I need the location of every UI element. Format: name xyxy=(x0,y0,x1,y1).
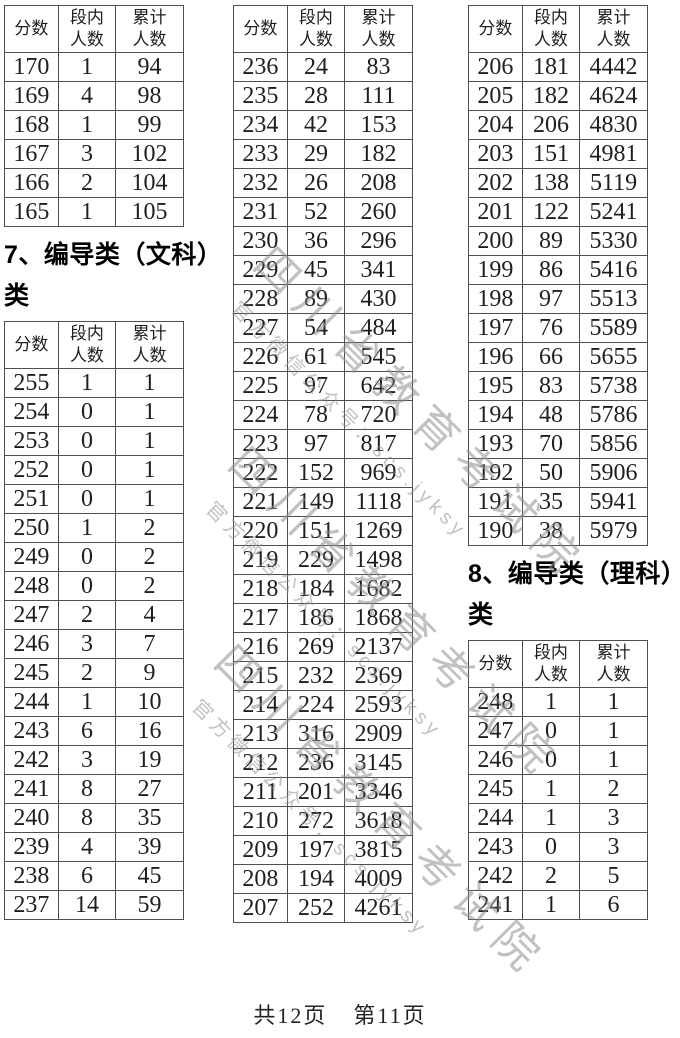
table-cell: 230 xyxy=(234,227,288,256)
table-row: 2102723618 xyxy=(234,807,413,836)
table-row: 197765589 xyxy=(469,314,648,343)
table-cell: 1 xyxy=(116,485,184,514)
table-cell: 0 xyxy=(522,717,579,746)
table-row: 240835 xyxy=(5,804,184,833)
table-cell: 2 xyxy=(116,514,184,543)
table-row: 192505906 xyxy=(469,459,648,488)
table-cell: 14 xyxy=(58,891,115,920)
table-row: 24529 xyxy=(5,659,184,688)
table-cell: 254 xyxy=(5,398,59,427)
table-row: 24811 xyxy=(469,688,648,717)
table-cell: 149 xyxy=(287,488,344,517)
table-cell: 3 xyxy=(580,833,648,862)
table-cell: 240 xyxy=(5,804,59,833)
table-cell: 220 xyxy=(234,517,288,546)
table-cell: 0 xyxy=(58,485,115,514)
table-cell: 2593 xyxy=(345,691,413,720)
table-cell: 242 xyxy=(469,862,523,891)
score-table-wenke-part2: 分数 段内 人数 累计 人数 2362483235281112344215323… xyxy=(233,5,413,923)
table-cell: 2137 xyxy=(345,633,413,662)
table-cell: 5979 xyxy=(580,517,648,546)
table-cell: 341 xyxy=(345,256,413,285)
column-right: 分数 段内 人数 累计 人数 2061814442205182462420420… xyxy=(468,5,648,920)
table-cell: 1 xyxy=(580,688,648,717)
table-cell: 250 xyxy=(5,514,59,543)
table-cell: 2 xyxy=(522,862,579,891)
table-row: 22945341 xyxy=(234,256,413,285)
table-cell: 190 xyxy=(469,517,523,546)
table-row: 190385979 xyxy=(469,517,648,546)
table-cell: 3 xyxy=(58,630,115,659)
table-cell: 35 xyxy=(522,488,579,517)
table-cell: 70 xyxy=(522,430,579,459)
col-header-segment-count: 段内 人数 xyxy=(522,641,579,688)
col-header-segment-count: 段内 人数 xyxy=(58,6,115,53)
table-cell: 4009 xyxy=(345,865,413,894)
table-cell: 182 xyxy=(345,140,413,169)
table-cell: 0 xyxy=(58,427,115,456)
col-header-score: 分数 xyxy=(469,6,523,53)
table-cell: 86 xyxy=(522,256,579,285)
table-row: 2171861868 xyxy=(234,604,413,633)
table-row: 24601 xyxy=(469,746,648,775)
table-cell: 16 xyxy=(116,717,184,746)
table-row: 170194 xyxy=(5,53,184,82)
table-cell: 6 xyxy=(580,891,648,920)
table-row: 25511 xyxy=(5,369,184,398)
table-cell: 59 xyxy=(116,891,184,920)
table-header: 分数 段内 人数 累计 人数 xyxy=(469,6,648,53)
table-cell: 89 xyxy=(522,227,579,256)
table-cell: 212 xyxy=(234,749,288,778)
table-cell: 272 xyxy=(287,807,344,836)
table-row: 24413 xyxy=(469,804,648,833)
table-cell: 2 xyxy=(116,543,184,572)
table-row: 2122363145 xyxy=(234,749,413,778)
table-row: 2072524261 xyxy=(234,894,413,923)
table-cell: 1868 xyxy=(345,604,413,633)
table-row: 193705856 xyxy=(469,430,648,459)
table-row: 2362483 xyxy=(234,53,413,82)
table-row: 2133162909 xyxy=(234,720,413,749)
col-header-score: 分数 xyxy=(234,6,288,53)
table-row: 238645 xyxy=(5,862,184,891)
table-cell: 1682 xyxy=(345,575,413,604)
table-row: 2081944009 xyxy=(234,865,413,894)
table-cell: 5655 xyxy=(580,343,648,372)
score-table-body: 2481124701246012451224413243032422524116 xyxy=(469,688,648,920)
table-cell: 153 xyxy=(345,111,413,140)
table-cell: 208 xyxy=(345,169,413,198)
table-cell: 1 xyxy=(58,369,115,398)
table-cell: 208 xyxy=(234,865,288,894)
table-row: 25012 xyxy=(5,514,184,543)
table-cell: 269 xyxy=(287,633,344,662)
table-cell: 0 xyxy=(58,398,115,427)
table-cell: 1 xyxy=(58,53,115,82)
table-cell: 2909 xyxy=(345,720,413,749)
table-cell: 236 xyxy=(287,749,344,778)
table-cell: 45 xyxy=(287,256,344,285)
table-cell: 241 xyxy=(5,775,59,804)
table-cell: 151 xyxy=(287,517,344,546)
table-header: 分数 段内 人数 累计 人数 xyxy=(5,6,184,53)
table-cell: 232 xyxy=(287,662,344,691)
table-cell: 0 xyxy=(58,572,115,601)
table-row: 2152322369 xyxy=(234,662,413,691)
table-row: 2162692137 xyxy=(234,633,413,662)
table-cell: 2369 xyxy=(345,662,413,691)
table-cell: 1 xyxy=(58,198,115,227)
footer-total-pages: 共12页 xyxy=(253,1003,327,1028)
table-cell: 224 xyxy=(287,691,344,720)
score-table-body: 2551125401253012520125101250122490224802… xyxy=(5,369,184,920)
table-cell: 166 xyxy=(5,169,59,198)
table-cell: 194 xyxy=(469,401,523,430)
table-cell: 1 xyxy=(116,427,184,456)
table-cell: 202 xyxy=(469,169,523,198)
table-header-row: 分数 段内 人数 累计 人数 xyxy=(234,6,413,53)
table-cell: 165 xyxy=(5,198,59,227)
table-cell: 1118 xyxy=(345,488,413,517)
table-row: 2011225241 xyxy=(469,198,648,227)
table-cell: 97 xyxy=(287,372,344,401)
table-row: 22397817 xyxy=(234,430,413,459)
table-row: 242319 xyxy=(5,746,184,775)
table-row: 168199 xyxy=(5,111,184,140)
table-cell: 245 xyxy=(469,775,523,804)
table-cell: 1 xyxy=(522,891,579,920)
table-cell: 233 xyxy=(234,140,288,169)
table-cell: 4442 xyxy=(580,53,648,82)
table-cell: 248 xyxy=(5,572,59,601)
table-header-row: 分数 段内 人数 累计 人数 xyxy=(469,641,648,688)
table-cell: 4830 xyxy=(580,111,648,140)
col-header-score: 分数 xyxy=(5,6,59,53)
table-cell: 222 xyxy=(234,459,288,488)
table-row: 2211491118 xyxy=(234,488,413,517)
col-header-cumulative-count: 累计 人数 xyxy=(580,6,648,53)
table-cell: 48 xyxy=(522,401,579,430)
table-cell: 182 xyxy=(522,82,579,111)
table-header: 分数 段内 人数 累计 人数 xyxy=(469,641,648,688)
table-row: 191355941 xyxy=(469,488,648,517)
table-cell: 316 xyxy=(287,720,344,749)
table-row: 25401 xyxy=(5,398,184,427)
table-cell: 26 xyxy=(287,169,344,198)
table-cell: 248 xyxy=(469,688,523,717)
col-header-cumulative-count: 累计 人数 xyxy=(116,322,184,369)
table-row: 22754484 xyxy=(234,314,413,343)
table-cell: 192 xyxy=(469,459,523,488)
table-cell: 3346 xyxy=(345,778,413,807)
table-cell: 83 xyxy=(345,53,413,82)
table-cell: 122 xyxy=(522,198,579,227)
table-row: 1673102 xyxy=(5,140,184,169)
table-cell: 8 xyxy=(58,775,115,804)
table-cell: 5 xyxy=(580,862,648,891)
col-header-score: 分数 xyxy=(5,322,59,369)
table-cell: 224 xyxy=(234,401,288,430)
table-row: 241827 xyxy=(5,775,184,804)
table-cell: 253 xyxy=(5,427,59,456)
table-cell: 4981 xyxy=(580,140,648,169)
table-cell: 225 xyxy=(234,372,288,401)
table-cell: 3815 xyxy=(345,836,413,865)
score-table-body: 2061814442205182462420420648302031514981… xyxy=(469,53,648,546)
table-cell: 193 xyxy=(469,430,523,459)
table-cell: 0 xyxy=(58,543,115,572)
table-cell: 3 xyxy=(58,746,115,775)
table-cell: 5241 xyxy=(580,198,648,227)
table-row: 24637 xyxy=(5,630,184,659)
table-cell: 94 xyxy=(116,53,184,82)
table-cell: 10 xyxy=(116,688,184,717)
table-cell: 238 xyxy=(5,862,59,891)
table-row: 169498 xyxy=(5,82,184,111)
table-cell: 4 xyxy=(116,601,184,630)
table-cell: 209 xyxy=(234,836,288,865)
table-cell: 5416 xyxy=(580,256,648,285)
table-cell: 3 xyxy=(58,140,115,169)
footer-current-page: 第11页 xyxy=(353,1003,426,1028)
table-row: 24902 xyxy=(5,543,184,572)
table-cell: 19 xyxy=(116,746,184,775)
table-row: 1651105 xyxy=(5,198,184,227)
table-cell: 3618 xyxy=(345,807,413,836)
table-cell: 226 xyxy=(234,343,288,372)
table-cell: 5856 xyxy=(580,430,648,459)
table-cell: 186 xyxy=(287,604,344,633)
table-cell: 215 xyxy=(234,662,288,691)
table-cell: 102 xyxy=(116,140,184,169)
table-row: 2091973815 xyxy=(234,836,413,865)
table-cell: 5786 xyxy=(580,401,648,430)
col-header-cumulative-count: 累计 人数 xyxy=(580,641,648,688)
table-row: 194485786 xyxy=(469,401,648,430)
section-heading-biandao-wenke: 7、编导类（文科）类 xyxy=(4,235,244,317)
table-cell: 249 xyxy=(5,543,59,572)
table-cell: 1 xyxy=(522,804,579,833)
table-cell: 246 xyxy=(5,630,59,659)
table-cell: 5119 xyxy=(580,169,648,198)
table-cell: 218 xyxy=(234,575,288,604)
table-cell: 231 xyxy=(234,198,288,227)
table-cell: 1 xyxy=(116,456,184,485)
table-cell: 430 xyxy=(345,285,413,314)
table-cell: 9 xyxy=(116,659,184,688)
table-header-row: 分数 段内 人数 累计 人数 xyxy=(5,322,184,369)
page-footer: 共12页第11页 xyxy=(0,998,680,1030)
table-cell: 4624 xyxy=(580,82,648,111)
table-cell: 5906 xyxy=(580,459,648,488)
table-cell: 8 xyxy=(58,804,115,833)
col-header-segment-count: 段内 人数 xyxy=(522,6,579,53)
table-cell: 2 xyxy=(58,659,115,688)
score-table-body: 170194169498168199167310216621041651105 xyxy=(5,53,184,227)
table-cell: 168 xyxy=(5,111,59,140)
table-row: 25201 xyxy=(5,456,184,485)
score-table-wenke-part3: 分数 段内 人数 累计 人数 2061814442205182462420420… xyxy=(468,5,648,546)
table-cell: 201 xyxy=(469,198,523,227)
table-row: 2112013346 xyxy=(234,778,413,807)
table-cell: 235 xyxy=(234,82,288,111)
table-cell: 296 xyxy=(345,227,413,256)
table-cell: 97 xyxy=(522,285,579,314)
table-cell: 105 xyxy=(116,198,184,227)
table-row: 2181841682 xyxy=(234,575,413,604)
table-cell: 229 xyxy=(234,256,288,285)
table-cell: 195 xyxy=(469,372,523,401)
table-cell: 98 xyxy=(116,82,184,111)
table-cell: 545 xyxy=(345,343,413,372)
col-header-cumulative-count: 累计 人数 xyxy=(345,6,413,53)
table-cell: 39 xyxy=(116,833,184,862)
table-cell: 196 xyxy=(469,343,523,372)
table-cell: 1269 xyxy=(345,517,413,546)
table-cell: 239 xyxy=(5,833,59,862)
table-cell: 242 xyxy=(5,746,59,775)
table-cell: 111 xyxy=(345,82,413,111)
col-header-cumulative-count: 累计 人数 xyxy=(116,6,184,53)
table-cell: 4 xyxy=(58,82,115,111)
table-row: 24701 xyxy=(469,717,648,746)
table-row: 244110 xyxy=(5,688,184,717)
table-cell: 252 xyxy=(287,894,344,923)
table-cell: 720 xyxy=(345,401,413,430)
table-cell: 243 xyxy=(469,833,523,862)
table-cell: 237 xyxy=(5,891,59,920)
table-row: 198975513 xyxy=(469,285,648,314)
table-row: 23528111 xyxy=(234,82,413,111)
table-cell: 206 xyxy=(522,111,579,140)
table-cell: 170 xyxy=(5,53,59,82)
table-cell: 138 xyxy=(522,169,579,198)
table-cell: 38 xyxy=(522,517,579,546)
table-cell: 213 xyxy=(234,720,288,749)
table-cell: 221 xyxy=(234,488,288,517)
table-cell: 7 xyxy=(116,630,184,659)
table-row: 2021385119 xyxy=(469,169,648,198)
table-cell: 251 xyxy=(5,485,59,514)
table-cell: 217 xyxy=(234,604,288,633)
table-row: 23226208 xyxy=(234,169,413,198)
table-row: 2061814442 xyxy=(469,53,648,82)
table-row: 239439 xyxy=(5,833,184,862)
table-cell: 5330 xyxy=(580,227,648,256)
table-cell: 76 xyxy=(522,314,579,343)
table-row: 2201511269 xyxy=(234,517,413,546)
table-cell: 3 xyxy=(580,804,648,833)
table-row: 222152969 xyxy=(234,459,413,488)
table-cell: 817 xyxy=(345,430,413,459)
table-row: 24225 xyxy=(469,862,648,891)
table-cell: 0 xyxy=(522,746,579,775)
table-row: 25301 xyxy=(5,427,184,456)
table-cell: 54 xyxy=(287,314,344,343)
table-cell: 2 xyxy=(580,775,648,804)
table-cell: 969 xyxy=(345,459,413,488)
table-row: 24512 xyxy=(469,775,648,804)
table-cell: 214 xyxy=(234,691,288,720)
table-cell: 1 xyxy=(58,514,115,543)
table-cell: 152 xyxy=(287,459,344,488)
table-cell: 3145 xyxy=(345,749,413,778)
table-cell: 5589 xyxy=(580,314,648,343)
table-cell: 66 xyxy=(522,343,579,372)
score-table-previous-section-tail: 分数 段内 人数 累计 人数 1701941694981681991673102… xyxy=(4,5,184,227)
table-cell: 29 xyxy=(287,140,344,169)
table-row: 23152260 xyxy=(234,198,413,227)
table-row: 2192291498 xyxy=(234,546,413,575)
table-cell: 1 xyxy=(522,775,579,804)
table-row: 24116 xyxy=(469,891,648,920)
document-page: 四川省教育考试院 官方微信公众号：scs.jyksy 四川省教育考试院 官方微信… xyxy=(0,0,680,1038)
table-header: 分数 段内 人数 累计 人数 xyxy=(5,322,184,369)
table-row: 22478720 xyxy=(234,401,413,430)
table-cell: 205 xyxy=(469,82,523,111)
table-cell: 181 xyxy=(522,53,579,82)
table-row: 22597642 xyxy=(234,372,413,401)
score-table-wenke-part1: 分数 段内 人数 累计 人数 2551125401253012520125101… xyxy=(4,321,184,920)
table-cell: 241 xyxy=(469,891,523,920)
table-header-row: 分数 段内 人数 累计 人数 xyxy=(469,6,648,53)
column-left: 分数 段内 人数 累计 人数 1701941694981681991673102… xyxy=(4,5,184,920)
table-cell: 197 xyxy=(287,836,344,865)
table-cell: 4 xyxy=(58,833,115,862)
table-cell: 247 xyxy=(469,717,523,746)
column-middle: 分数 段内 人数 累计 人数 2362483235281112344215323… xyxy=(233,5,413,923)
table-cell: 245 xyxy=(5,659,59,688)
table-row: 2042064830 xyxy=(469,111,648,140)
table-cell: 167 xyxy=(5,140,59,169)
table-cell: 45 xyxy=(116,862,184,891)
table-cell: 35 xyxy=(116,804,184,833)
table-cell: 255 xyxy=(5,369,59,398)
table-cell: 198 xyxy=(469,285,523,314)
table-cell: 24 xyxy=(287,53,344,82)
table-cell: 5738 xyxy=(580,372,648,401)
table-cell: 1 xyxy=(58,111,115,140)
table-row: 195835738 xyxy=(469,372,648,401)
table-cell: 50 xyxy=(522,459,579,488)
table-cell: 169 xyxy=(5,82,59,111)
table-cell: 229 xyxy=(287,546,344,575)
table-row: 23329182 xyxy=(234,140,413,169)
table-cell: 151 xyxy=(522,140,579,169)
table-row: 25101 xyxy=(5,485,184,514)
table-row: 24802 xyxy=(5,572,184,601)
table-cell: 199 xyxy=(469,256,523,285)
table-cell: 232 xyxy=(234,169,288,198)
table-cell: 260 xyxy=(345,198,413,227)
table-row: 2142242593 xyxy=(234,691,413,720)
table-cell: 247 xyxy=(5,601,59,630)
table-cell: 83 xyxy=(522,372,579,401)
table-row: 24303 xyxy=(469,833,648,862)
table-cell: 1 xyxy=(580,746,648,775)
table-cell: 27 xyxy=(116,775,184,804)
table-cell: 6 xyxy=(58,717,115,746)
table-cell: 203 xyxy=(469,140,523,169)
table-cell: 200 xyxy=(469,227,523,256)
table-cell: 206 xyxy=(469,53,523,82)
table-cell: 216 xyxy=(234,633,288,662)
table-cell: 236 xyxy=(234,53,288,82)
table-cell: 244 xyxy=(5,688,59,717)
col-header-segment-count: 段内 人数 xyxy=(58,322,115,369)
table-cell: 5941 xyxy=(580,488,648,517)
